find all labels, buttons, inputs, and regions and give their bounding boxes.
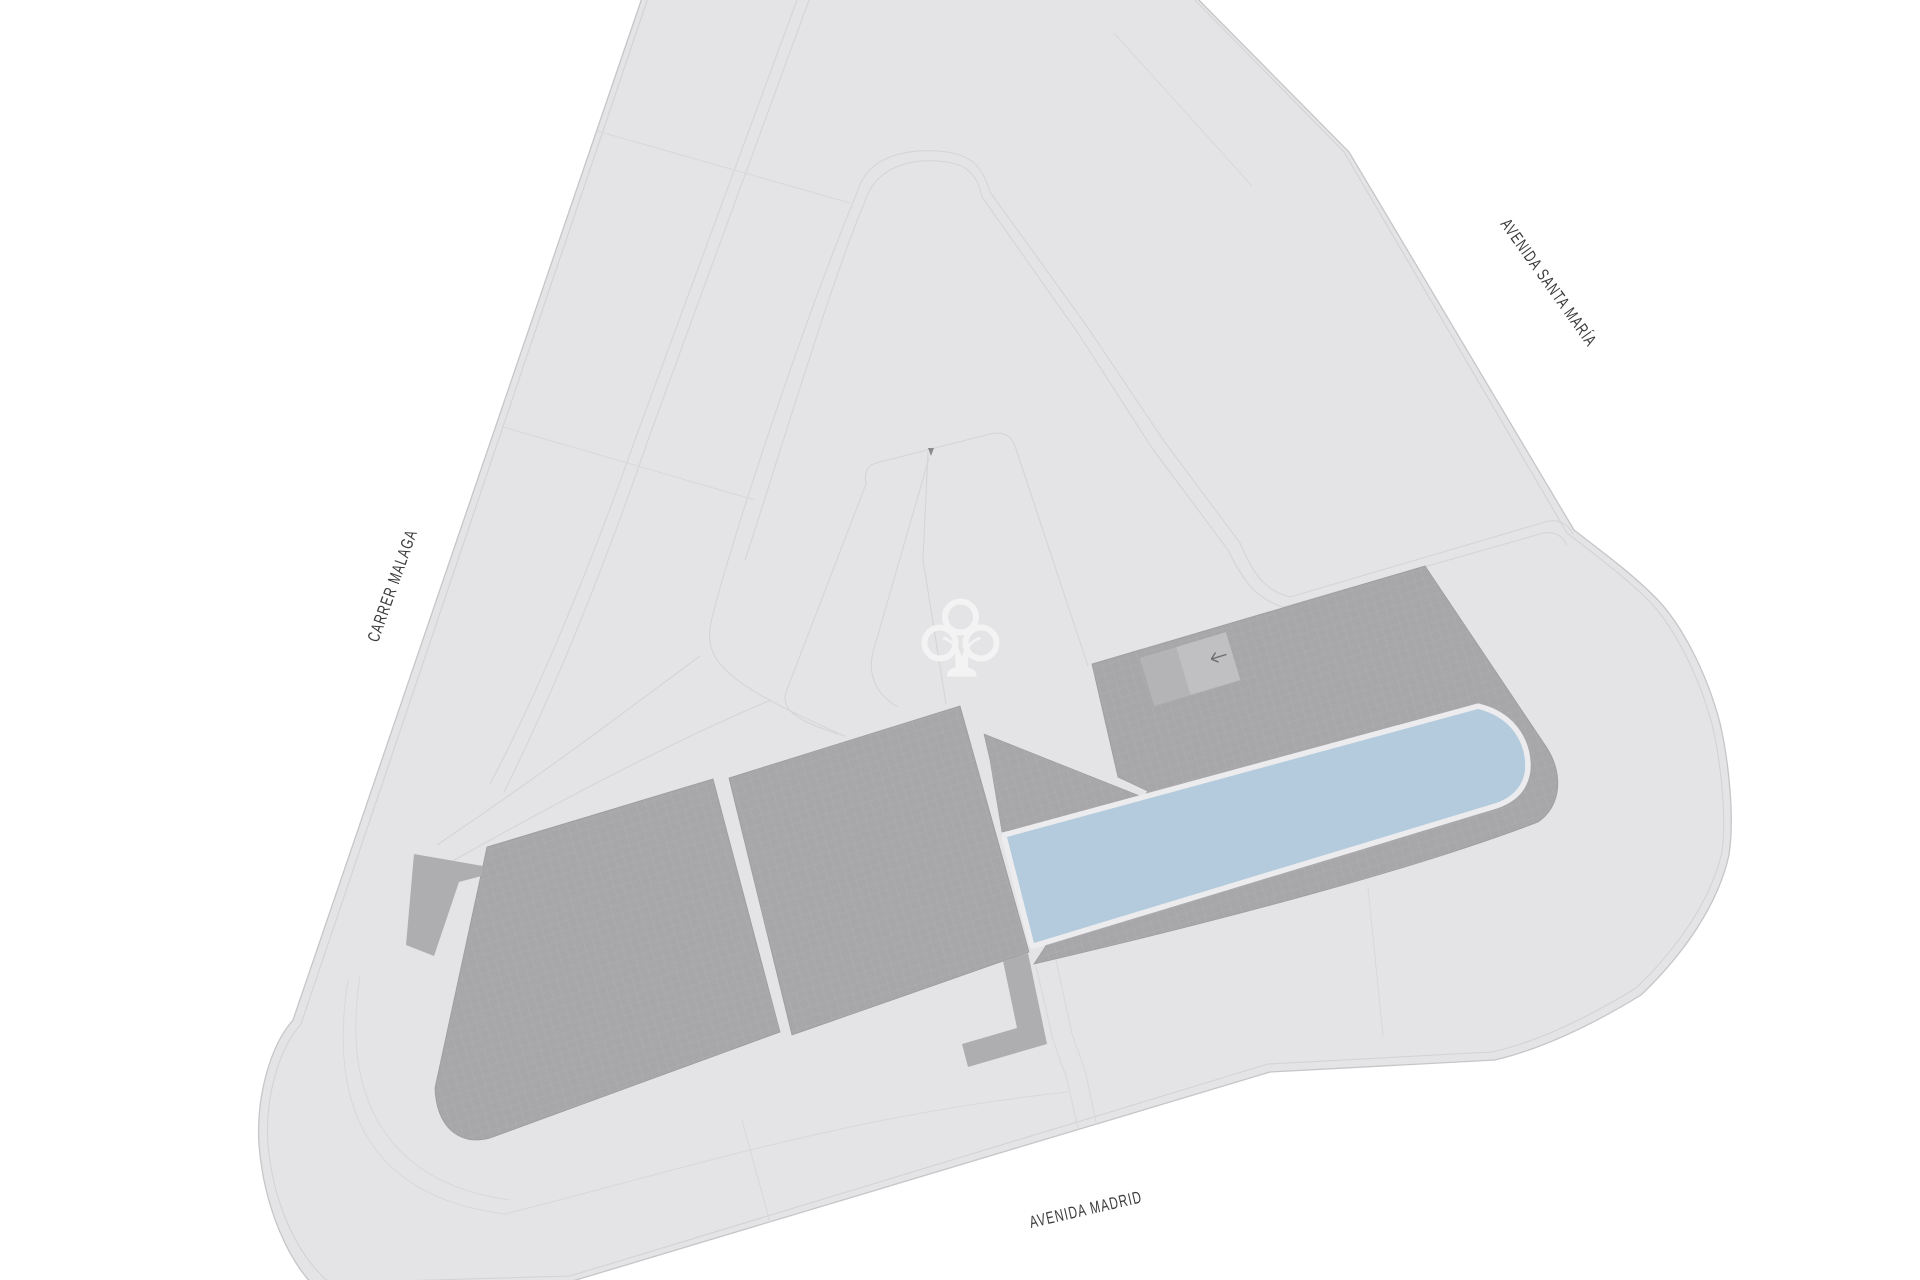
svg-text:AVENIDA MADRID: AVENIDA MADRID — [1028, 1188, 1144, 1232]
svg-text:CARRER MALAGA: CARRER MALAGA — [364, 527, 421, 645]
svg-text:AVENIDA SANTA MARÍA: AVENIDA SANTA MARÍA — [1497, 215, 1601, 350]
